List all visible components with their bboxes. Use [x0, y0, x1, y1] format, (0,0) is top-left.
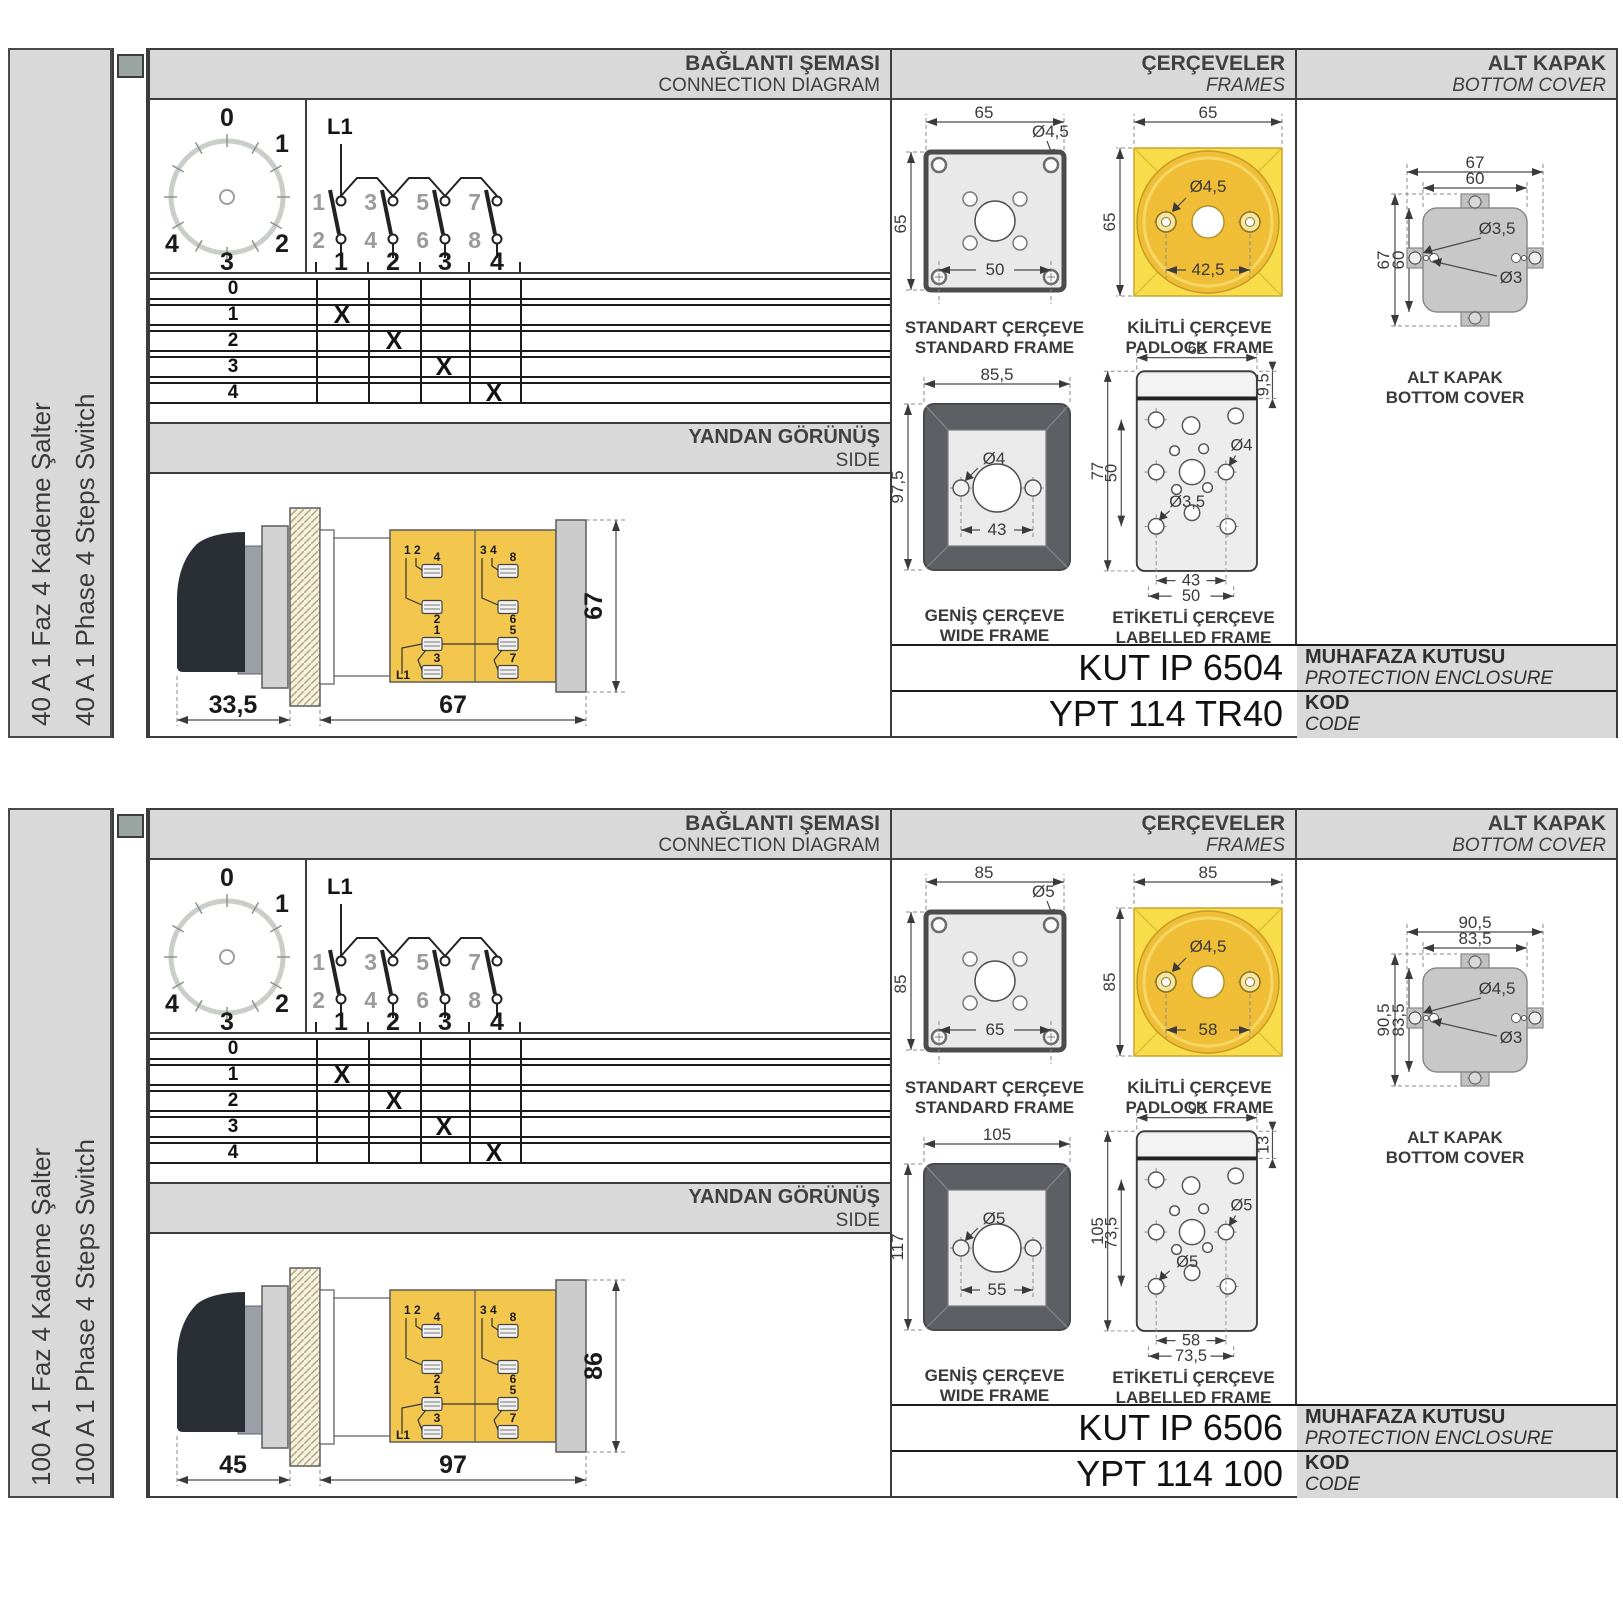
output-label: 3 — [438, 248, 452, 276]
header-connection-en: CONNECTION DIAGRAM — [150, 75, 880, 97]
hole-callout-left: Ø3,5 — [1169, 493, 1205, 511]
output-label: 4 — [490, 248, 504, 276]
padlock-frame-drawing: 85 85 Ø4,5 — [1110, 866, 1292, 1076]
contact-label: 1 — [312, 949, 325, 975]
hole-callout: Ø4 — [983, 449, 1006, 468]
caption-tr: STANDART ÇERÇEVE — [892, 1078, 1097, 1098]
output-label: 1 — [334, 1008, 348, 1036]
enclosure-label-tr: MUHAFAZA KUTUSU — [1305, 647, 1616, 668]
output-label: 2 — [386, 1008, 400, 1036]
enclosure-code: KUT IP 6504 — [892, 646, 1295, 690]
dim-hole-spacing: 43 — [988, 520, 1007, 539]
wide-frame-caption: GENİŞ ÇERÇEVE WIDE FRAME — [892, 606, 1097, 646]
caption-tr: ALT KAPAK — [1305, 1128, 1605, 1148]
contact-label: 2 — [312, 227, 325, 253]
schematic-source-label: L1 — [327, 114, 353, 139]
dim-height: 67 — [580, 592, 608, 620]
table-mark: X — [477, 379, 511, 408]
contact-label: 4 — [364, 987, 377, 1013]
connection-schematic: L1 1 3 5 7 2 4 6 8 1 2 3 4 — [307, 860, 890, 1032]
output-label: 2 — [386, 248, 400, 276]
standard-frame-drawing: 85 Ø5 85 65 — [898, 866, 1093, 1076]
labelled-frame-drawing: 62 9,5 77 50 — [1098, 342, 1287, 606]
output-label: 4 — [490, 1008, 504, 1036]
table-grid-line — [520, 1038, 522, 1164]
header-frames-tr: ÇERÇEVELER — [892, 53, 1285, 75]
dial-position-3: 3 — [220, 248, 234, 276]
terminal-label: 8 — [510, 1310, 517, 1324]
switch-handle — [177, 532, 245, 672]
enclosure-label-en: PROTECTION ENCLOSURE — [1305, 668, 1616, 689]
mounting-panel-hatched — [290, 1268, 320, 1466]
enclosure-label: MUHAFAZA KUTUSU PROTECTION ENCLOSURE — [1297, 1406, 1616, 1450]
table-row-label: 0 — [150, 1040, 316, 1057]
dial-position-0: 0 — [220, 864, 234, 892]
table-row-label: 4 — [150, 1144, 316, 1161]
contact-label: 5 — [416, 949, 429, 975]
table-mark: X — [325, 1061, 359, 1090]
table-row-label: 1 — [150, 306, 316, 323]
terminal-label: 8 — [510, 550, 517, 564]
section-header-bar: BAĞLANTI ŞEMASI CONNECTION DIAGRAM ÇERÇE… — [150, 810, 1616, 860]
wide-frame-caption: GENİŞ ÇERÇEVE WIDE FRAME — [892, 1366, 1097, 1406]
header-cover-tr: ALT KAPAK — [1297, 813, 1606, 835]
table-row-label: 3 — [150, 1118, 316, 1135]
spacer-plate — [320, 530, 334, 684]
bottom-cover-region: 67 60 67 60 — [1297, 100, 1616, 644]
caption-tr: ALT KAPAK — [1305, 368, 1605, 388]
contact-label: 3 — [364, 949, 377, 975]
contact-label: 8 — [468, 987, 481, 1013]
bottom-cover-caption: ALT KAPAK BOTTOM COVER — [1305, 1128, 1605, 1168]
rotary-dial-diagram: 0 1 2 3 4 — [150, 100, 305, 272]
schematic-cell: L1 1 3 5 7 2 4 6 8 1 2 3 4 — [307, 860, 890, 1034]
dial-position-2: 2 — [275, 990, 289, 1018]
product-code: YPT 114 100 — [892, 1452, 1295, 1496]
caption-en: BOTTOM COVER — [1305, 1148, 1605, 1168]
terminal-label: 5 — [510, 623, 517, 637]
code-label-tr: KOD — [1305, 693, 1616, 714]
caption-tr: GENİŞ ÇERÇEVE — [892, 1366, 1097, 1386]
side-view-drawing: 1 2 3 4 4 2 1 3 8 6 5 7 L1 86 45 — [150, 1234, 890, 1498]
dim-height: 65 — [891, 215, 910, 234]
dim-holes-outer: 73,5 — [1175, 1347, 1207, 1365]
dim-height-inner: 83,5 — [1389, 1003, 1408, 1036]
dim-height-inner: 60 — [1389, 251, 1408, 270]
labelled-frame-caption: ETİKETLİ ÇERÇEVE LABELLED FRAME — [1092, 608, 1295, 648]
dim-width: 85 — [975, 863, 994, 882]
section-header-bar: BAĞLANTI ŞEMASI CONNECTION DIAGRAM ÇERÇE… — [150, 50, 1616, 100]
header-frames: ÇERÇEVELER FRAMES — [892, 810, 1295, 858]
dim-width: 90 — [1188, 1100, 1206, 1118]
spine-column — [112, 48, 148, 738]
codes-block: KUT IP 6504 MUHAFAZA KUTUSU PROTECTION E… — [892, 644, 1616, 736]
standard-frame-caption: STANDART ÇERÇEVE STANDARD FRAME — [892, 318, 1097, 358]
terminal-label: 3 — [434, 651, 441, 665]
terminal-label: 4 — [434, 550, 441, 564]
dial-position-3: 3 — [220, 1008, 234, 1036]
product-section: 100 A 1 Faz 4 Kademe Şalter 100 A 1 Phas… — [0, 808, 1623, 1498]
code-label: KOD CODE — [1297, 1452, 1616, 1498]
header-frames-en: FRAMES — [892, 75, 1285, 97]
enclosure-label-en: PROTECTION ENCLOSURE — [1305, 1428, 1616, 1449]
dim-height: 85 — [1100, 973, 1119, 992]
dim-height: 97,5 — [888, 470, 907, 503]
table-grid-line — [368, 278, 370, 404]
header-connection-diagram: BAĞLANTI ŞEMASI CONNECTION DIAGRAM — [150, 50, 890, 98]
table-row-label: 3 — [150, 358, 316, 375]
product-label-box: 100 A 1 Faz 4 Kademe Şalter 100 A 1 Phas… — [8, 808, 112, 1498]
frames-region: 65 Ø4,5 65 50 — [892, 100, 1295, 644]
contact-label: 4 — [364, 227, 377, 253]
dim-body-depth: 97 — [439, 1451, 467, 1479]
hole-callout: Ø4,5 — [1190, 937, 1227, 956]
caption-tr: STANDART ÇERÇEVE — [892, 318, 1097, 338]
standard-frame-drawing: 65 Ø4,5 65 50 — [898, 106, 1093, 316]
dial-position-2: 2 — [275, 230, 289, 258]
contact-label: 6 — [416, 987, 429, 1013]
hole-callout-small: Ø3 — [1500, 268, 1523, 287]
content-area: BAĞLANTI ŞEMASI CONNECTION DIAGRAM ÇERÇE… — [148, 48, 1618, 738]
header-frames-tr: ÇERÇEVELER — [892, 813, 1285, 835]
wide-frame-drawing: 105 117 Ø5 55 — [898, 1128, 1090, 1364]
terminal-label: 1 — [434, 1383, 441, 1397]
labelled-frame-drawing: 90 13 105 73,5 — [1098, 1102, 1287, 1366]
output-label: 1 — [334, 248, 348, 276]
hole-callout-small: Ø3 — [1500, 1028, 1523, 1047]
labelled-frame-caption: ETİKETLİ ÇERÇEVE LABELLED FRAME — [1092, 1368, 1295, 1408]
side-view-band: YANDAN GÖRÜNÜŞ SIDE — [150, 1182, 890, 1234]
dim-width: 62 — [1188, 340, 1206, 358]
header-cover-en: BOTTOM COVER — [1297, 75, 1606, 97]
contact-label: 8 — [468, 227, 481, 253]
dial-position-1: 1 — [275, 130, 289, 158]
side-view-title-en: SIDE — [150, 1209, 880, 1232]
spine-column — [112, 808, 148, 1498]
dim-band-height: 9,5 — [1255, 373, 1273, 396]
spine-marker — [117, 54, 144, 78]
table-row-label: 4 — [150, 384, 316, 401]
dim-height-inner: 73,5 — [1102, 1217, 1120, 1249]
front-plate — [262, 1286, 288, 1448]
header-bottom-cover: ALT KAPAK BOTTOM COVER — [1297, 810, 1616, 858]
hole-callout-big: Ø4,5 — [1479, 979, 1516, 998]
standard-frame-caption: STANDART ÇERÇEVE STANDARD FRAME — [892, 1078, 1097, 1118]
bottom-cover-drawing: 67 60 67 60 — [1305, 156, 1605, 362]
table-row-label: 2 — [150, 332, 316, 349]
dial-cell: 0 1 2 3 4 — [150, 100, 307, 274]
caption-en: WIDE FRAME — [892, 626, 1097, 646]
rotary-dial-diagram: 0 1 2 3 4 — [150, 860, 305, 1032]
caption-en: BOTTOM COVER — [1305, 388, 1605, 408]
terminal-label: 7 — [510, 651, 517, 665]
header-cover-en: BOTTOM COVER — [1297, 835, 1606, 857]
enclosure-code: KUT IP 6506 — [892, 1406, 1295, 1450]
dim-width-inner: 60 — [1466, 169, 1485, 188]
terminal-source-label: L1 — [396, 1428, 410, 1442]
table-row-label: 1 — [150, 1066, 316, 1083]
header-frames: ÇERÇEVELER FRAMES — [892, 50, 1295, 98]
product-name-english: 100 A 1 Phase 4 Steps Switch — [70, 824, 108, 1486]
product-name-turkish: 40 A 1 Faz 4 Kademe Şalter — [26, 64, 64, 726]
bottom-cover-region: 90,5 83,5 90,5 83,5 — [1297, 860, 1616, 1404]
contact-label: 7 — [468, 949, 481, 975]
dim-height: 65 — [1100, 213, 1119, 232]
dim-width: 65 — [1199, 103, 1218, 122]
table-grid-line — [469, 278, 471, 404]
mounting-panel-hatched — [290, 508, 320, 706]
switch-body-front — [334, 1298, 390, 1436]
code-label: KOD CODE — [1297, 692, 1616, 738]
hole-callout-left: Ø5 — [1176, 1253, 1198, 1271]
switch-handle — [177, 1292, 245, 1432]
table-grid-line — [420, 1038, 422, 1164]
dial-position-4: 4 — [165, 990, 179, 1018]
enclosure-label: MUHAFAZA KUTUSU PROTECTION ENCLOSURE — [1297, 646, 1616, 690]
terminal-source-label: L1 — [396, 668, 410, 682]
bottom-cover-drawing: 90,5 83,5 90,5 83,5 — [1305, 916, 1605, 1122]
header-connection-diagram: BAĞLANTI ŞEMASI CONNECTION DIAGRAM — [150, 810, 890, 858]
switch-body-front — [334, 538, 390, 676]
caption-tr: ETİKETLİ ÇERÇEVE — [1092, 608, 1295, 628]
side-view-title-tr: YANDAN GÖRÜNÜŞ — [150, 1186, 880, 1209]
dim-hole-spacing: 42,5 — [1191, 260, 1224, 279]
product-name-turkish: 100 A 1 Faz 4 Kademe Şalter — [26, 824, 64, 1486]
header-cover-tr: ALT KAPAK — [1297, 53, 1606, 75]
terminal-header-right: 3 4 — [480, 543, 497, 557]
product-name-english: 40 A 1 Phase 4 Steps Switch — [70, 64, 108, 726]
code-label-en: CODE — [1305, 1474, 1616, 1495]
contact-label: 1 — [312, 189, 325, 215]
front-plate — [262, 526, 288, 688]
code-label-tr: KOD — [1305, 1453, 1616, 1474]
spine-marker — [117, 814, 144, 838]
table-row-label: 0 — [150, 280, 316, 297]
dim-hole-spacing: 55 — [988, 1280, 1007, 1299]
hole-callout-right: Ø4 — [1230, 437, 1252, 455]
contact-label: 7 — [468, 189, 481, 215]
table-mark: X — [377, 327, 411, 356]
terminal-label: 4 — [434, 1310, 441, 1324]
caption-tr: GENİŞ ÇERÇEVE — [892, 606, 1097, 626]
dim-band-height: 13 — [1255, 1136, 1273, 1154]
dim-width: 65 — [975, 103, 994, 122]
dial-position-1: 1 — [275, 890, 289, 918]
product-section: 40 A 1 Faz 4 Kademe Şalter 40 A 1 Phase … — [0, 48, 1623, 738]
hole-callout: Ø4,5 — [1190, 177, 1227, 196]
wide-frame-drawing: 85,5 97,5 Ø4 43 — [898, 368, 1090, 604]
caption-en: STANDARD FRAME — [892, 338, 1097, 358]
dim-width: 85,5 — [980, 365, 1013, 384]
header-connection-tr: BAĞLANTI ŞEMASI — [150, 813, 880, 835]
table-row-label: 2 — [150, 1092, 316, 1109]
terminal-label: 7 — [510, 1411, 517, 1425]
dim-height: 86 — [580, 1352, 608, 1380]
contact-label: 2 — [312, 987, 325, 1013]
table-mark: X — [477, 1139, 511, 1168]
side-view-title-tr: YANDAN GÖRÜNÜŞ — [150, 426, 880, 449]
bottom-cover-caption: ALT KAPAK BOTTOM COVER — [1305, 368, 1605, 408]
enclosure-label-tr: MUHAFAZA KUTUSU — [1305, 1407, 1616, 1428]
dim-hole-spacing: 65 — [986, 1020, 1005, 1039]
dim-height: 85 — [891, 975, 910, 994]
dim-width-inner: 83,5 — [1458, 929, 1491, 948]
contact-label: 5 — [416, 189, 429, 215]
table-grid-line — [420, 278, 422, 404]
hole-callout-big: Ø3,5 — [1479, 219, 1516, 238]
header-connection-tr: BAĞLANTI ŞEMASI — [150, 53, 880, 75]
header-connection-en: CONNECTION DIAGRAM — [150, 835, 880, 857]
header-bottom-cover: ALT KAPAK BOTTOM COVER — [1297, 50, 1616, 98]
dim-hole-spacing: 50 — [986, 260, 1005, 279]
table-grid-line — [316, 278, 318, 404]
spacer-plate — [320, 1290, 334, 1444]
dim-holes-outer: 50 — [1182, 587, 1200, 605]
table-mark: X — [427, 1113, 461, 1142]
table-mark: X — [325, 301, 359, 330]
product-label-box: 40 A 1 Faz 4 Kademe Şalter 40 A 1 Phase … — [8, 48, 112, 738]
codes-block: KUT IP 6506 MUHAFAZA KUTUSU PROTECTION E… — [892, 1404, 1616, 1496]
frames-region: 85 Ø5 85 65 — [892, 860, 1295, 1404]
dim-height: 117 — [888, 1233, 907, 1260]
table-grid-line — [316, 1038, 318, 1164]
terminal-label: 3 — [434, 1411, 441, 1425]
caption-tr: KİLİTLİ ÇERÇEVE — [1102, 1078, 1297, 1098]
dim-body-depth: 67 — [439, 691, 467, 719]
terminal-label: 5 — [510, 1383, 517, 1397]
dim-width: 105 — [983, 1125, 1011, 1144]
dim-width: 85 — [1199, 863, 1218, 882]
side-view-drawing: 1 2 3 4 4 2 1 3 8 6 5 7 L1 67 33,5 — [150, 474, 890, 738]
hole-callout: Ø4,5 — [1032, 122, 1069, 141]
schematic-cell: L1 1 3 5 7 2 4 6 8 1 2 3 4 — [307, 100, 890, 274]
dial-position-4: 4 — [165, 230, 179, 258]
table-grid-line — [520, 278, 522, 404]
table-grid-line — [469, 1038, 471, 1164]
code-label-en: CODE — [1305, 714, 1616, 735]
contact-label: 6 — [416, 227, 429, 253]
caption-tr: ETİKETLİ ÇERÇEVE — [1092, 1368, 1295, 1388]
dim-front-depth: 33,5 — [209, 691, 258, 719]
terminal-header-left: 1 2 — [404, 1303, 421, 1317]
content-area: BAĞLANTI ŞEMASI CONNECTION DIAGRAM ÇERÇE… — [148, 808, 1618, 1498]
terminal-header-left: 1 2 — [404, 543, 421, 557]
contact-label: 3 — [364, 189, 377, 215]
dim-height-inner: 50 — [1102, 464, 1120, 482]
padlock-frame-drawing: 65 65 Ø4,5 — [1110, 106, 1292, 316]
terminal-header-right: 3 4 — [480, 1303, 497, 1317]
output-label: 3 — [438, 1008, 452, 1036]
header-frames-en: FRAMES — [892, 835, 1285, 857]
caption-en: WIDE FRAME — [892, 1386, 1097, 1406]
table-mark: X — [377, 1087, 411, 1116]
schematic-source-label: L1 — [327, 874, 353, 899]
table-grid-line — [368, 1038, 370, 1164]
dial-position-0: 0 — [220, 104, 234, 132]
hole-callout-right: Ø5 — [1230, 1197, 1252, 1215]
connection-schematic: L1 1 3 5 7 2 4 6 8 1 2 3 4 — [307, 100, 890, 272]
hole-callout: Ø5 — [1032, 882, 1055, 901]
side-view-band: YANDAN GÖRÜNÜŞ SIDE — [150, 422, 890, 474]
caption-en: STANDARD FRAME — [892, 1098, 1097, 1118]
table-mark: X — [427, 353, 461, 382]
dim-hole-spacing: 58 — [1199, 1020, 1218, 1039]
side-view-title-en: SIDE — [150, 449, 880, 472]
dim-front-depth: 45 — [219, 1451, 247, 1479]
dial-cell: 0 1 2 3 4 — [150, 860, 307, 1034]
caption-tr: KİLİTLİ ÇERÇEVE — [1102, 318, 1297, 338]
terminal-label: 1 — [434, 623, 441, 637]
hole-callout: Ø5 — [983, 1209, 1006, 1228]
product-code: YPT 114 TR40 — [892, 692, 1295, 736]
